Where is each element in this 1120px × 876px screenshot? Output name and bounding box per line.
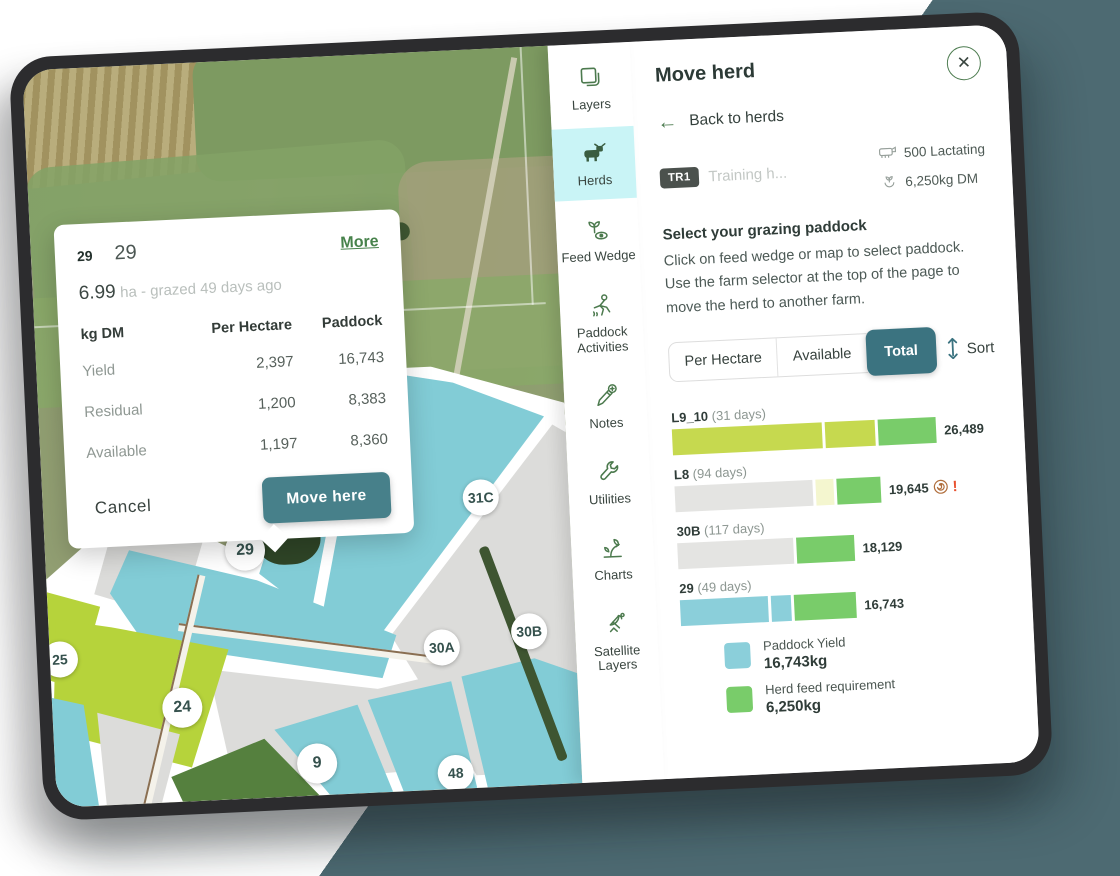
- herd-stats: 500 Lactating 6,250kg DM: [878, 139, 987, 192]
- table-header-kg-dm: kg DM: [80, 315, 172, 351]
- back-arrow-icon: ←: [657, 112, 678, 133]
- paddock-popup-header: 29 29 More: [76, 230, 379, 267]
- paddock-id-badge: 29: [77, 247, 93, 264]
- bar-paddock-name: 30B: [676, 524, 701, 540]
- bar-days-label: (117 days): [700, 521, 765, 539]
- feed-wedge-row-29[interactable]: 29 (49 days)16,743: [679, 566, 1007, 626]
- sidebar-item-feed-wedge[interactable]: Feed Wedge: [555, 202, 640, 278]
- herd-identity: TR1 Training h...: [659, 149, 788, 203]
- sidebar-item-utilities[interactable]: Utilities: [567, 444, 652, 520]
- bar-segment-herd-feed-requirement: [794, 592, 857, 621]
- legend-item-paddock-yield: Paddock Yield16,743kg: [724, 627, 1009, 674]
- value-mode-tabs: Per HectareAvailableTotal: [668, 330, 937, 383]
- bar-track: [674, 477, 881, 513]
- sidebar-item-label: Notes: [589, 415, 624, 432]
- paddock-area-note: ha - grazed 49 days ago: [120, 277, 282, 302]
- herds-icon: [578, 138, 609, 169]
- row-label: Available: [85, 429, 178, 474]
- sidebar-item-label: Charts: [594, 567, 633, 584]
- legend-value: 6,250kg: [766, 694, 897, 717]
- legend-value: 16,743kg: [764, 652, 847, 673]
- sidebar-item-label: Utilities: [589, 491, 632, 508]
- back-label: Back to herds: [689, 108, 785, 130]
- legend-item-herd-feed-requirement: Herd feed requirement6,250kg: [726, 671, 1011, 718]
- satellite-layers-icon: [600, 608, 631, 639]
- row-per-hectare: 1,197: [176, 423, 299, 470]
- bar-segment-grazed: [677, 538, 794, 569]
- herd-badge: TR1: [659, 167, 699, 189]
- sidebar-item-herds[interactable]: Herds: [552, 126, 637, 202]
- sidebar-item-label: Satellite Layers: [578, 642, 657, 676]
- chart-legend: Paddock Yield16,743kgHerd feed requireme…: [682, 627, 1011, 720]
- bar-segment-buffer: [815, 479, 834, 506]
- sidebar-item-label: Herds: [577, 173, 612, 190]
- paddock-area: 6.99 ha - grazed 49 days ago: [78, 269, 381, 305]
- close-icon[interactable]: ✕: [946, 45, 982, 81]
- bar-paddock-name: L8: [674, 467, 690, 483]
- bar-segment-grazed: [674, 480, 813, 512]
- bar-days-label: (94 days): [689, 464, 747, 482]
- sidebar-item-label: Feed Wedge: [561, 248, 636, 266]
- sort-label: Sort: [966, 339, 994, 357]
- paddock-area-value: 6.99: [78, 281, 116, 304]
- bar-value: 18,129: [862, 539, 902, 556]
- paddock-marker-label: 30B: [516, 623, 542, 640]
- sort-button[interactable]: Sort: [945, 334, 995, 364]
- notes-icon: [589, 380, 620, 411]
- bar-value: 26,489: [944, 421, 984, 438]
- legend-text: Herd feed requirement6,250kg: [765, 677, 897, 717]
- bar-segment-herd-feed-requirement: [836, 477, 881, 505]
- tab-per-hectare[interactable]: Per Hectare: [669, 339, 778, 382]
- feed-wedge-row-30b[interactable]: 30B (117 days)18,129: [676, 509, 1004, 569]
- layers-icon: [574, 62, 605, 93]
- herd-name: Training h...: [708, 164, 787, 185]
- feed-requirement-label: 6,250kg DM: [905, 171, 978, 189]
- bar-value: 19,645!: [888, 478, 957, 498]
- bar-segment-paddock-yield: [680, 597, 769, 627]
- alert-icon: !: [952, 478, 958, 495]
- row-paddock: 8,360: [297, 419, 389, 464]
- bar-total-label: 16,743: [864, 596, 904, 613]
- bar-segment-paddock-yield: [771, 595, 792, 622]
- row-paddock: 8,383: [295, 378, 387, 423]
- move-here-button[interactable]: Move here: [261, 472, 391, 524]
- sidebar-item-satellite-layers[interactable]: Satellite Layers: [574, 596, 660, 687]
- legend-swatch: [724, 642, 751, 669]
- sidebar-item-layers[interactable]: Layers: [548, 50, 633, 126]
- row-per-hectare: 1,200: [174, 382, 297, 429]
- sidebar-item-notes[interactable]: Notes: [563, 368, 648, 444]
- tab-available[interactable]: Available: [776, 335, 867, 377]
- feed-wedge-chart: L9_10 (31 days)26,489L8 (94 days)19,645!…: [671, 395, 1007, 626]
- row-paddock: 16,743: [293, 337, 385, 382]
- bar-total-label: 26,489: [944, 421, 984, 438]
- more-link[interactable]: More: [340, 232, 379, 252]
- stock-count-label: 500 Lactating: [904, 141, 986, 160]
- bar-segment-herd-feed-requirement: [878, 417, 937, 446]
- page: 31B 31C 29 30A 30B 25 24 9 48 29 29 More: [0, 0, 1120, 876]
- bar-paddock-name: 29: [679, 581, 694, 597]
- paddock-marker-label: 31C: [468, 489, 494, 506]
- row-label: Yield: [81, 347, 174, 392]
- panel-header: Move herd ✕: [654, 45, 981, 94]
- herd-summary: TR1 Training h... 500 Lactating: [659, 139, 987, 202]
- section-instructions: Click on feed wedge or map to select pad…: [663, 235, 992, 321]
- paddock-marker-label: 48: [448, 765, 464, 782]
- paddock-marker-label: 25: [52, 651, 68, 668]
- bar-days-label: (49 days): [693, 578, 751, 596]
- bar-paddock-name: L9_10: [671, 409, 709, 426]
- cow-icon: [878, 143, 899, 163]
- feed-requirement: 6,250kg DM: [879, 168, 987, 192]
- tablet-device-frame: 31B 31C 29 30A 30B 25 24 9 48 29 29 More: [9, 11, 1054, 822]
- legend-text: Paddock Yield16,743kg: [763, 635, 847, 673]
- table-header-paddock: Paddock: [291, 305, 383, 341]
- feed-icon: [879, 172, 900, 192]
- sidebar-item-label: Paddock Activities: [563, 324, 642, 358]
- sort-arrows-icon: [945, 335, 961, 364]
- move-herd-panel: Move herd ✕ ← Back to herds TR1 Training…: [629, 24, 1039, 779]
- feed-wedge-row-l8[interactable]: L8 (94 days)19,645!: [674, 452, 1002, 512]
- paddock-marker-label: 9: [312, 754, 322, 772]
- row-per-hectare: 2,397: [172, 341, 295, 388]
- bar-value: 16,743: [864, 596, 904, 613]
- page-title: Move herd: [654, 56, 755, 88]
- legend-label: Paddock Yield: [763, 635, 846, 654]
- tabs-row: Per HectareAvailableTotal Sort: [668, 328, 996, 383]
- feed-wedge-row-l9-10[interactable]: L9_10 (31 days)26,489: [671, 395, 999, 455]
- paddock-popup-footer: Cancel Move here: [88, 472, 392, 532]
- sidebar-item-label: Layers: [572, 97, 612, 114]
- row-label: Residual: [83, 388, 176, 433]
- feed-wedge-icon: [582, 214, 613, 245]
- tab-total[interactable]: Total: [864, 327, 937, 376]
- bar-track: [680, 592, 857, 626]
- utilities-icon: [593, 456, 624, 487]
- paddock-marker-label: 29: [236, 541, 255, 560]
- paddock-activities-icon: [585, 290, 616, 321]
- sidebar-item-paddock-activities[interactable]: Paddock Activities: [559, 277, 645, 368]
- bar-track: [677, 535, 855, 569]
- bale-icon: [932, 479, 949, 496]
- sidebar-item-charts[interactable]: Charts: [570, 520, 655, 596]
- bar-total-label: 18,129: [862, 539, 902, 556]
- paddock-popup: 29 29 More 6.99 ha - grazed 49 days ago …: [53, 209, 414, 549]
- farm-map[interactable]: 31B 31C 29 30A 30B 25 24 9 48 29 29 More: [22, 46, 582, 808]
- legend-swatch: [726, 686, 753, 713]
- paddock-marker-label: 24: [173, 698, 192, 717]
- bar-days-label: (31 days): [708, 406, 766, 424]
- stock-count: 500 Lactating: [878, 139, 986, 163]
- paddock-marker-label: 30A: [429, 639, 455, 656]
- back-to-herds-link[interactable]: ← Back to herds: [657, 97, 984, 132]
- bar-segment-pasture-cover: [672, 423, 823, 456]
- bar-total-label: 19,645: [889, 480, 929, 497]
- cancel-button[interactable]: Cancel: [88, 486, 158, 529]
- app-screen: 31B 31C 29 30A 30B 25 24 9 48 29 29 More: [22, 24, 1040, 808]
- paddock-data-table: kg DM Per Hectare Paddock Yield2,39716,7…: [80, 305, 389, 474]
- bar-segment-pasture-cover: [825, 420, 876, 448]
- paddock-popup-title: 29: [114, 241, 137, 265]
- bar-segment-herd-feed-requirement: [796, 535, 855, 564]
- charts-icon: [597, 532, 628, 563]
